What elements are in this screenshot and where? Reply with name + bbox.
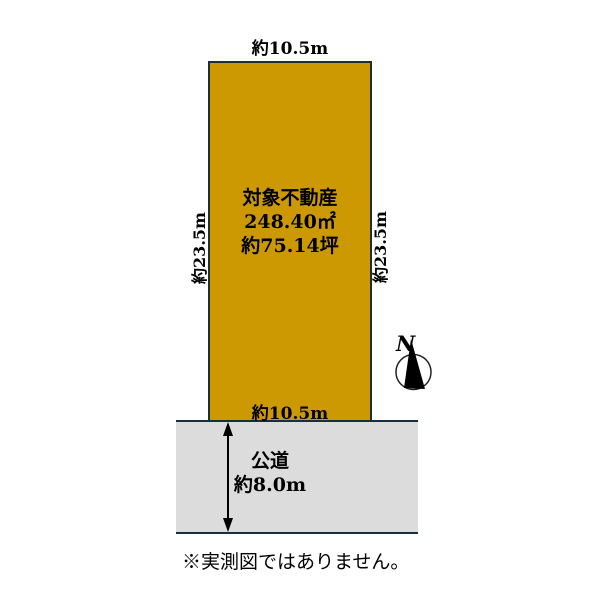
disclaimer-note: ※実測図ではありません。 <box>182 547 409 574</box>
road-name: 公道 <box>210 449 330 473</box>
road-info: 公道 約8.0m <box>210 449 330 497</box>
right-depth-label: 約23.5m <box>372 201 390 293</box>
property-area-m2: 248.40㎡ <box>208 210 372 234</box>
bottom-width-label: 約10.5m <box>208 399 372 424</box>
left-depth-label: 約23.5m <box>191 202 209 294</box>
top-width-label: 約10.5m <box>208 34 372 59</box>
property-title: 対象不動産 <box>208 186 372 210</box>
road-width-label: 約8.0m <box>210 473 330 497</box>
property-area-tsubo: 約75.14坪 <box>208 234 372 258</box>
plot-info: 対象不動産 248.40㎡ 約75.14坪 <box>208 186 372 258</box>
land-plot-diagram: 約10.5m 約23.5m 約23.5m 対象不動産 248.40㎡ 約75.1… <box>0 0 600 600</box>
compass-n-label: N <box>395 331 416 356</box>
compass-north-icon: N <box>392 330 438 394</box>
